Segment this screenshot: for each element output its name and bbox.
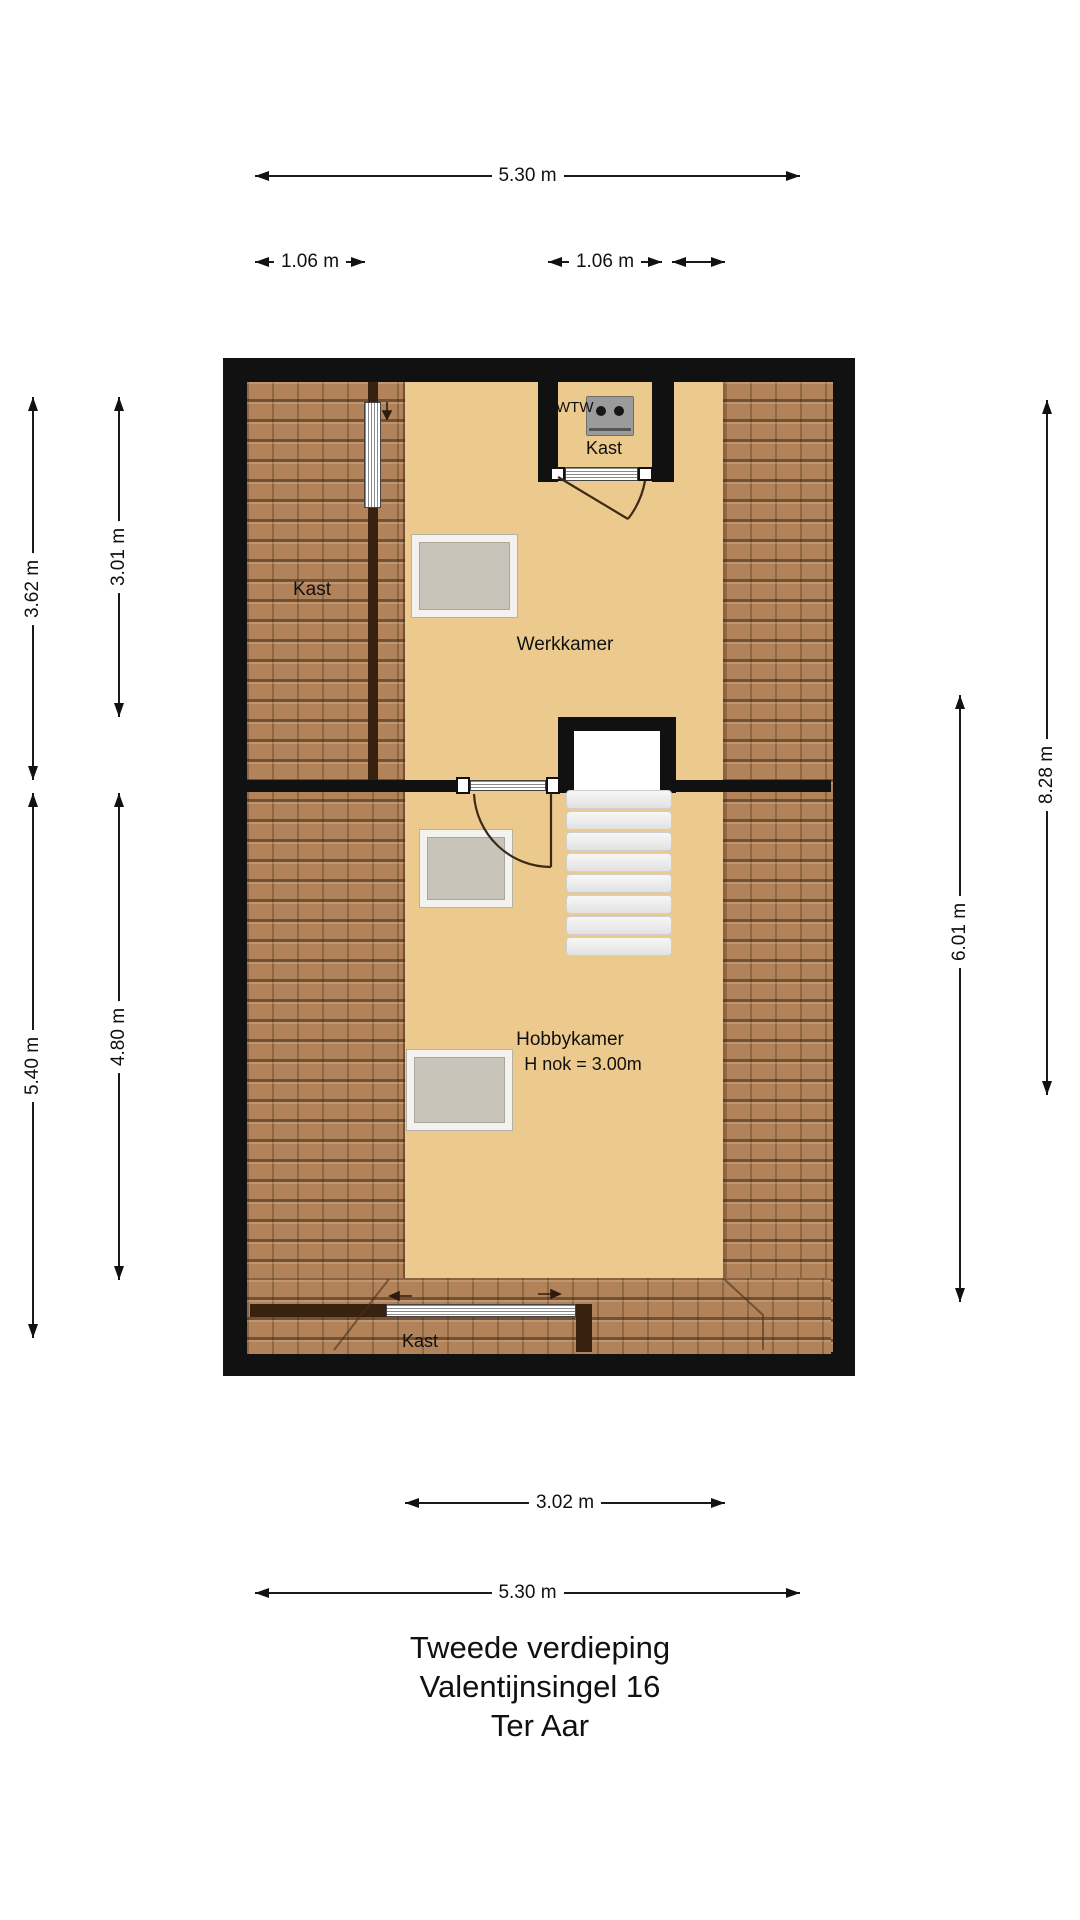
door-jamb xyxy=(456,777,470,794)
title-address: Valentijnsingel 16 xyxy=(410,1667,670,1706)
dim-label: 3.01 m xyxy=(108,521,130,593)
stair-tread xyxy=(566,895,672,914)
arrow-down-icon xyxy=(955,1288,965,1302)
stairwell-wall-right xyxy=(660,717,676,793)
room-label-werkkamer: Werkkamer xyxy=(517,634,614,656)
dividing-wall-right xyxy=(676,780,831,792)
room-label-kast-left: Kast xyxy=(293,579,331,601)
dim-label: 1.06 m xyxy=(569,251,641,273)
roof-slope-right xyxy=(723,382,833,1352)
knob-icon xyxy=(596,406,606,416)
arrow-left-icon xyxy=(548,257,562,267)
arrow-right-icon xyxy=(711,1498,725,1508)
dim-label: 3.02 m xyxy=(529,1492,601,1514)
arrow-left-icon xyxy=(255,257,269,267)
arrow-up-icon xyxy=(114,397,124,411)
wtw-closet-door xyxy=(565,467,638,481)
dim-top-small-unlabeled xyxy=(672,252,725,272)
skylight-stairs xyxy=(420,830,512,907)
dim-top-stairwell: 1.06 m xyxy=(548,252,662,272)
arrow-up-icon xyxy=(955,695,965,709)
dim-left-upper-inner: 3.01 m xyxy=(109,397,129,717)
dim-left-lower-outer: 5.40 m xyxy=(23,793,43,1338)
dim-left-upper-outer: 3.62 m xyxy=(23,397,43,780)
arrow-right-icon xyxy=(786,171,800,181)
arrow-down-icon xyxy=(28,766,38,780)
arrow-left-icon xyxy=(405,1498,419,1508)
room-label-hobbykamer: Hobbykamer xyxy=(516,1029,624,1051)
arrow-right-icon xyxy=(351,257,365,267)
title-city: Ter Aar xyxy=(410,1706,670,1745)
knob-icon xyxy=(614,406,624,416)
plan-title: Tweede verdieping Valentijnsingel 16 Ter… xyxy=(410,1628,670,1745)
room-label-wtw: WTW xyxy=(556,397,593,419)
dim-label: 3.62 m xyxy=(22,552,44,624)
dim-label: 4.80 m xyxy=(108,1000,130,1072)
arrow-down-icon xyxy=(114,1266,124,1280)
vent-slot xyxy=(589,428,631,431)
title-floor: Tweede verdieping xyxy=(410,1628,670,1667)
kast-bottom-sliding-door xyxy=(386,1304,576,1317)
room-label-hobbykamer-height: H nok = 3.00m xyxy=(524,1053,642,1075)
floorplan-page: 5.30 m 1.06 m 1.06 m 3.62 m 3.01 m 5.40 … xyxy=(0,0,1080,1920)
dim-label: 5.30 m xyxy=(491,1582,563,1604)
stair-tread xyxy=(566,832,672,851)
arrow-down-icon xyxy=(114,703,124,717)
dim-line xyxy=(959,695,961,1302)
dividing-wall-left xyxy=(247,780,458,792)
arrow-right-icon xyxy=(711,257,725,267)
dim-label: 5.40 m xyxy=(22,1029,44,1101)
arrow-down-icon xyxy=(1042,1081,1052,1095)
dim-top-total: 5.30 m xyxy=(255,166,800,186)
dim-bottom-room: 3.02 m xyxy=(405,1493,725,1513)
arrow-up-icon xyxy=(28,397,38,411)
skylight-hobbykamer xyxy=(407,1050,512,1130)
stairwell-wall-left xyxy=(558,717,574,793)
dim-bottom-total: 5.30 m xyxy=(255,1583,800,1603)
dim-left-lower-inner: 4.80 m xyxy=(109,793,129,1280)
arrow-down-icon xyxy=(28,1324,38,1338)
kast-left-sliding-door xyxy=(364,402,381,508)
stair-tread xyxy=(566,790,672,809)
arrow-right-icon xyxy=(648,257,662,267)
kast-bottom-wall xyxy=(250,1304,386,1317)
stair-tread xyxy=(566,916,672,935)
dim-label: 6.01 m xyxy=(949,896,971,968)
stair-landing xyxy=(574,731,660,790)
room-label-kast-bottom: Kast xyxy=(402,1330,438,1352)
arrow-right-icon xyxy=(786,1588,800,1598)
room-label-kast-top: Kast xyxy=(586,437,622,459)
dim-label: 1.06 m xyxy=(274,251,346,273)
arrow-left-icon xyxy=(255,1588,269,1598)
door-jamb xyxy=(550,467,565,481)
arrow-left-icon xyxy=(672,257,686,267)
stair-tread xyxy=(566,937,672,956)
skylight-werkkamer xyxy=(412,535,517,617)
kast-bottom-wall-post xyxy=(576,1304,592,1352)
arrow-left-icon xyxy=(255,171,269,181)
arrow-up-icon xyxy=(1042,400,1052,414)
dim-right-outer: 8.28 m xyxy=(1037,400,1057,1095)
dim-right-inner: 6.01 m xyxy=(950,695,970,1302)
stair-tread xyxy=(566,811,672,830)
dim-label: 8.28 m xyxy=(1036,739,1058,811)
dim-top-left-strip: 1.06 m xyxy=(255,252,365,272)
stairwell-wall-top xyxy=(558,717,676,731)
wtw-closet-wall-right xyxy=(652,382,674,482)
stair-tread xyxy=(566,853,672,872)
door-jamb xyxy=(638,467,653,481)
roof-slope-left xyxy=(247,382,405,1352)
hobbykamer-door-leaf-closed xyxy=(470,780,546,791)
stair-tread xyxy=(566,874,672,893)
arrow-up-icon xyxy=(114,793,124,807)
dim-label: 5.30 m xyxy=(491,165,563,187)
arrow-up-icon xyxy=(28,793,38,807)
